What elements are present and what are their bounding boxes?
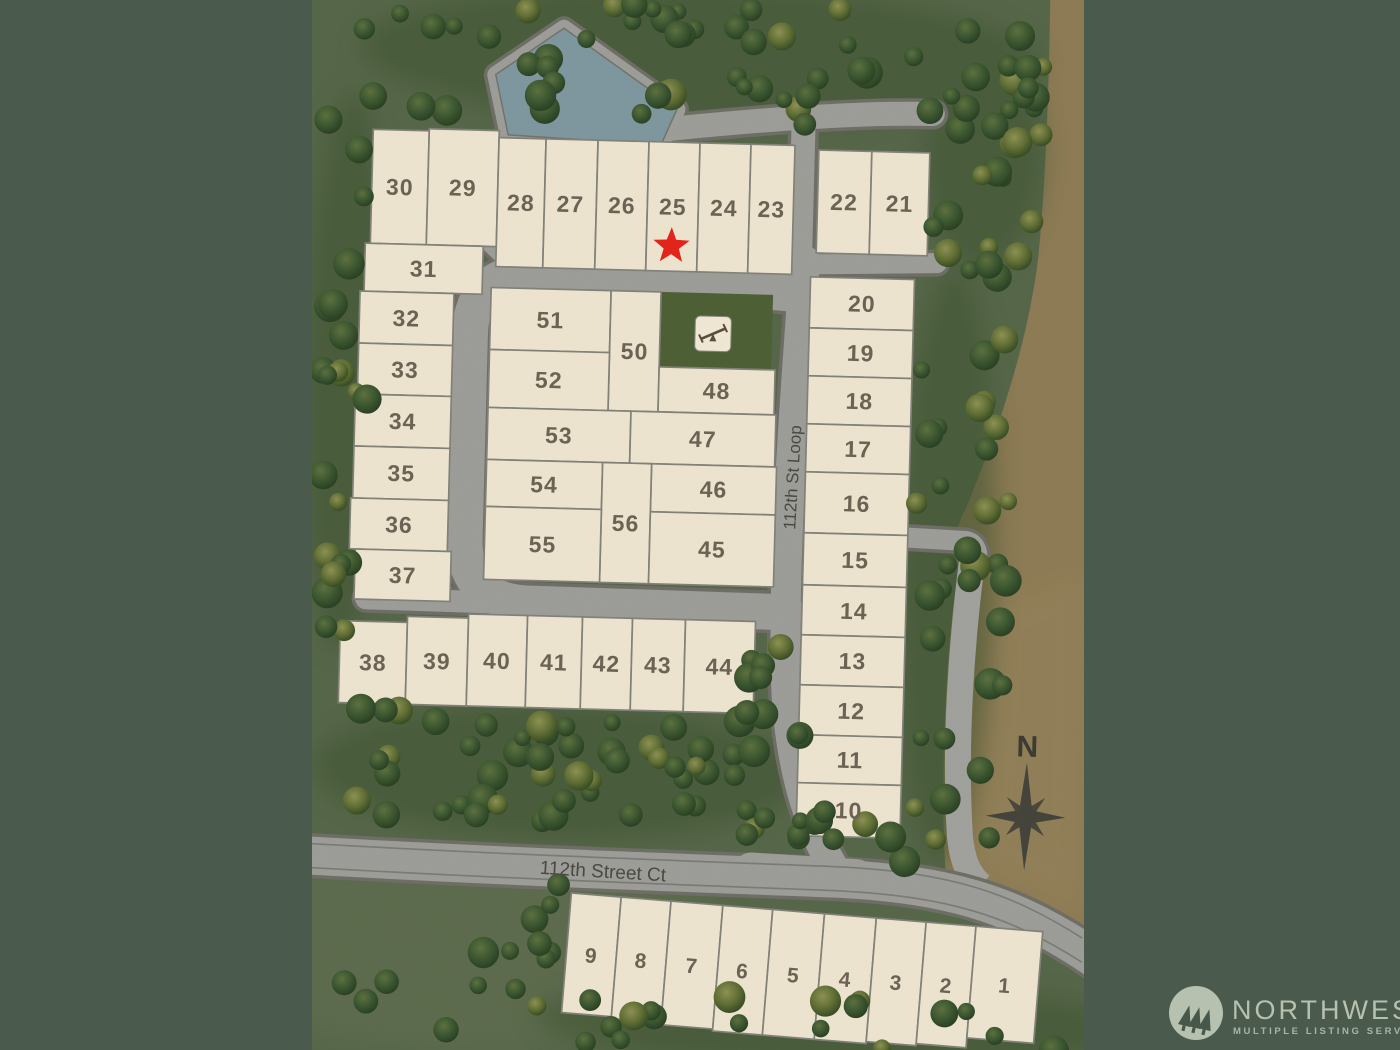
- site-plan-map: 987654321 302928272625242322213132333435…: [0, 0, 1400, 1050]
- plat-map-screenshot: 987654321 302928272625242322213132333435…: [0, 0, 1400, 1050]
- logo-secondary-text: MULTIPLE LISTING SERVICE.: [1233, 1026, 1400, 1037]
- nwmls-logo: NORTHWEST MULTIPLE LISTING SERVICE.: [1169, 986, 1400, 1040]
- logo-primary-text: NORTHWEST: [1232, 995, 1400, 1025]
- texture-overlay: [312, 0, 1084, 1050]
